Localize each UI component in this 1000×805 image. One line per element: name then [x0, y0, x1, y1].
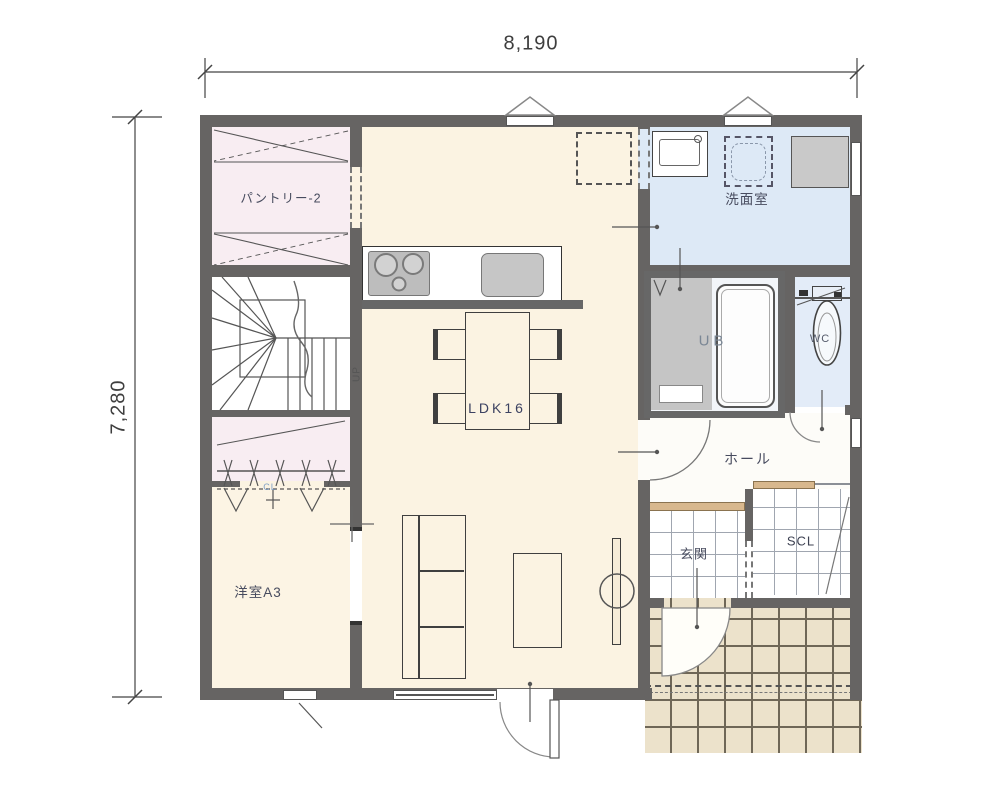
room-label-pantry: パントリー-2 [240, 188, 321, 207]
closet-linework [217, 421, 345, 511]
tv-stand-circle [600, 574, 634, 608]
room-label-ldk: LDK16 [468, 400, 526, 416]
ldk-bottom-door-arc [500, 702, 555, 757]
room-label-up: UP [352, 366, 363, 382]
scl-diagonal [826, 497, 849, 594]
stove-burners [375, 254, 423, 291]
room-label-scl: SCL [787, 534, 815, 549]
ldk-bottom-door-leaf [550, 700, 559, 758]
door-arcs [500, 412, 820, 758]
wc-door-arc [790, 412, 820, 442]
room-label-bath: UB [699, 333, 728, 350]
floor-plan: 8,190 7,280 パントリー-2 UP CL 洋室A3 LDK16 洗面室… [0, 0, 1000, 805]
bath-door-mark [654, 280, 666, 295]
room-label-washroom: 洗面室 [725, 188, 769, 208]
room-label-hall: ホール [724, 449, 772, 469]
stairs-linework [212, 277, 350, 410]
ldk-hall-door-arc [650, 420, 710, 480]
room-label-entrance: 玄関 [680, 544, 708, 563]
dimension-height: 7,280 [108, 379, 131, 434]
leader-lines [299, 225, 824, 728]
dimension-lines [112, 58, 864, 704]
wc-linework [795, 288, 850, 365]
vent-triangles [506, 97, 772, 115]
dimension-width: 8,190 [503, 33, 558, 56]
room-label-cl: CL [263, 482, 277, 492]
room-label-bedroom: 洋室A3 [234, 581, 282, 601]
sliding-door-mark [330, 506, 374, 542]
room-label-wc: WC [810, 333, 830, 345]
front-door-swing [662, 608, 730, 676]
